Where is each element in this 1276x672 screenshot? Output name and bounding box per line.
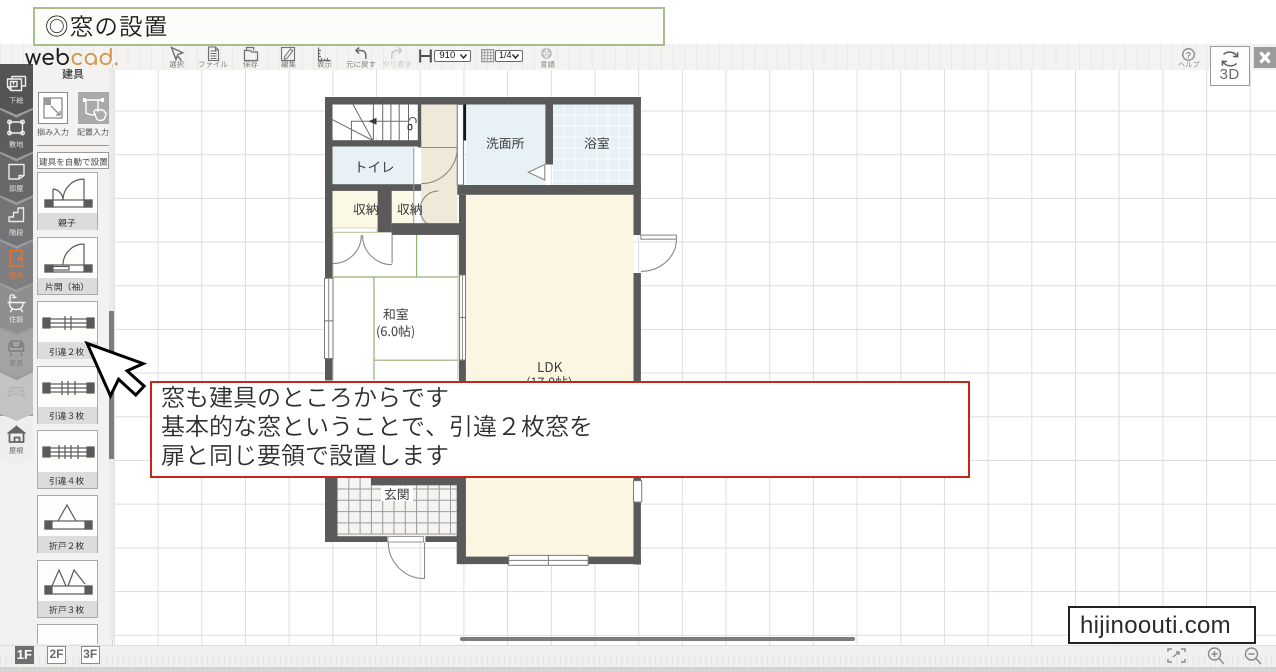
svg-text:?: ? <box>1185 50 1191 60</box>
